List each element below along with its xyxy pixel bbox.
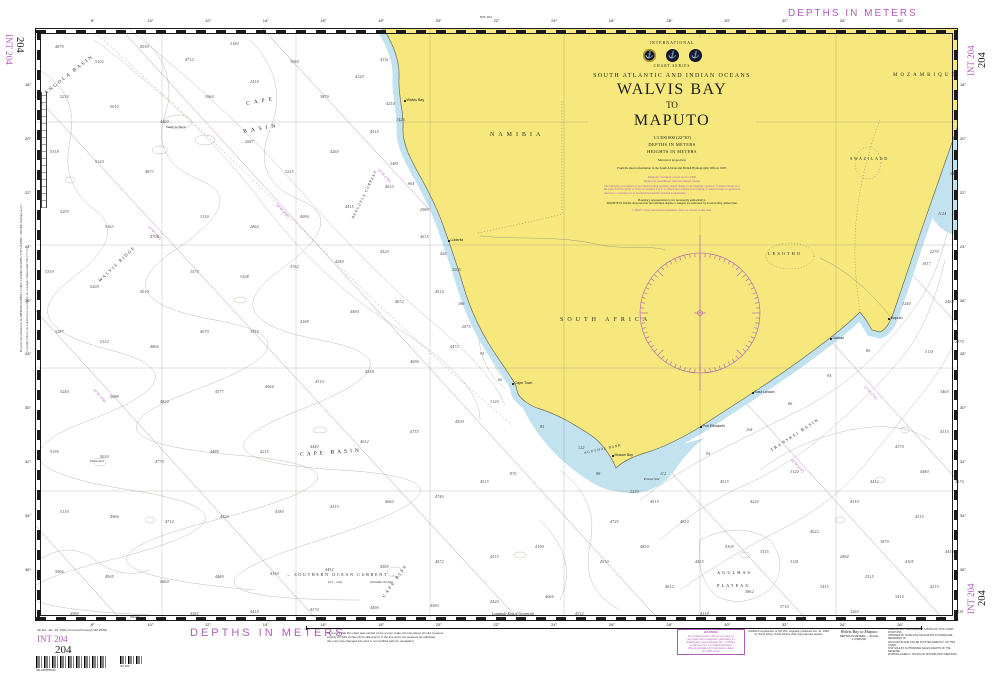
publisher-imprint: Prepared and published by the DEFENSE MA… — [20, 203, 23, 352]
chart-title-small-text: Walvis Bay to Maputo — [834, 629, 884, 634]
chart-number-bottom-left: 204 — [55, 644, 72, 656]
chart-number-bottom-right: 204 — [977, 590, 988, 606]
longitude-label: 8° — [91, 622, 95, 627]
latitude-label: 26° — [960, 298, 966, 303]
sales-note: LORAN-C LATTICES ARE NOT SHOWN ON THIS C… — [888, 628, 960, 656]
int-number-top-right: INT 204 — [966, 45, 976, 76]
longitude-label: 26° — [609, 18, 615, 23]
chart-number-top-right: 204 — [977, 52, 988, 68]
chart-title-small-sub: DEPTHS IN METERS — SCALE 1:3,500,000 — [834, 635, 884, 641]
longitude-note: Longitude East of Greenwich — [492, 612, 534, 616]
longitude-label: 24° — [551, 18, 557, 23]
latitude-label: 18° — [960, 82, 966, 87]
latitude-label: 32° — [25, 459, 31, 464]
chart-inner-line — [40, 33, 953, 616]
barcode-caption: SPL040055904A — [36, 669, 56, 672]
depth-conversion-scale — [41, 92, 47, 208]
latitude-label: 20° — [25, 136, 31, 141]
border-ruler-right — [954, 29, 957, 620]
int-number-bottom-left: INT 204 — [37, 634, 68, 644]
latitude-label: 18° — [25, 82, 31, 87]
longitude-label: 12° — [205, 18, 211, 23]
border-ruler-top — [36, 30, 957, 33]
reproduction-note: Modified reproduction of INT 204, origin… — [746, 630, 832, 637]
depths-in-meters-top: DEPTHS IN METERS — [788, 8, 918, 19]
warning-body: The prudent mariner will not rely solely… — [680, 635, 742, 653]
longitude-label: 8° — [91, 18, 95, 23]
copyright-imprint: Copyright 1992 by the United States Gove… — [26, 246, 29, 352]
scale-check-note: To ensure that this chart was printed at… — [327, 632, 477, 643]
longitude-label: 18° — [378, 18, 384, 23]
warning-box: WARNING The prudent mariner will not rel… — [677, 629, 745, 655]
longitude-label: 30° — [724, 18, 730, 23]
latitude-label: 34° — [960, 513, 966, 518]
longitude-label: 10° — [147, 18, 153, 23]
longitude-label: 28° — [667, 18, 673, 23]
latitude-label: 22° — [960, 190, 966, 195]
chart-number-top-left: 204 — [14, 37, 25, 53]
top-center-note: INT 204 — [480, 15, 492, 19]
border-ruler-left — [37, 29, 40, 620]
longitude-label: 14° — [263, 18, 269, 23]
int-number-bottom-right: INT 204 — [966, 583, 976, 614]
latitude-label: 22° — [25, 190, 31, 195]
latitude-label: 36° — [960, 567, 966, 572]
border-ruler-bottom — [36, 617, 957, 620]
edition-note: 4th Ed., Jan. 25, 1992 (Corrected throug… — [37, 629, 107, 633]
chart-title-small: Walvis Bay to Maputo DEPTHS IN METERS — … — [834, 629, 884, 641]
barcode-secondary-caption: INT 204 — [120, 665, 129, 668]
latitude-label: 28° — [25, 351, 31, 356]
latitude-label: 30° — [960, 405, 966, 410]
latitude-label: 24° — [960, 244, 966, 249]
longitude-label: 22° — [493, 18, 499, 23]
int-number-top-left: INT 204 — [4, 34, 14, 65]
latitude-label: 28° — [960, 351, 966, 356]
latitude-label: 34° — [25, 513, 31, 518]
latitude-label: 32° — [960, 459, 966, 464]
barcode — [36, 656, 108, 668]
longitude-label: 16° — [320, 18, 326, 23]
latitude-label: 20° — [960, 136, 966, 141]
latitude-label: 36° — [25, 567, 31, 572]
latitude-label: 30° — [25, 405, 31, 410]
nautical-chart-page: 8°8°10°10°12°12°14°14°16°16°18°18°20°20°… — [0, 0, 1000, 676]
longitude-label: 20° — [436, 18, 442, 23]
longitude-label: 10° — [147, 622, 153, 627]
barcode-secondary — [120, 656, 144, 664]
